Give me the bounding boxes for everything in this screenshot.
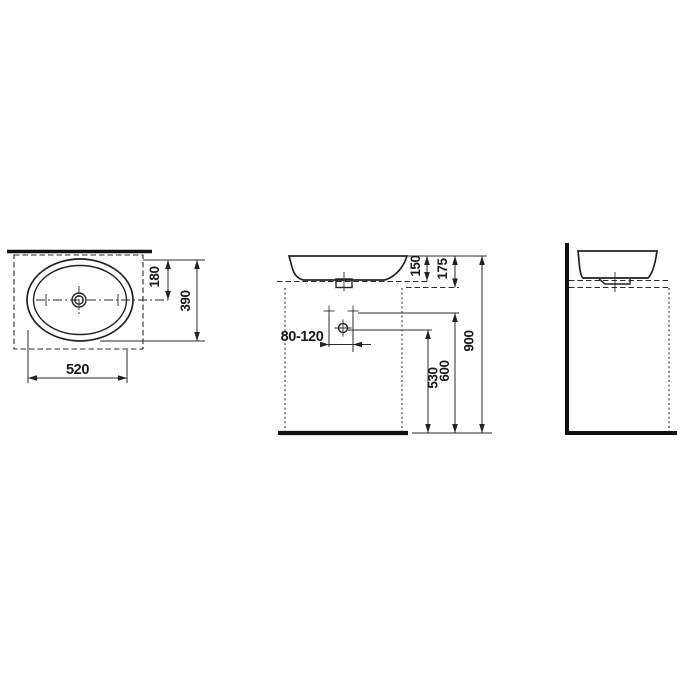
arrowhead-left-icon bbox=[28, 375, 37, 381]
drain-lip bbox=[599, 279, 630, 284]
dim-label-rear-to-center: 180 bbox=[147, 266, 162, 287]
dim-label-depth: 390 bbox=[178, 290, 193, 311]
top-view: 520 180 390 bbox=[7, 252, 205, 384]
side-view bbox=[565, 243, 677, 435]
dim-label-width: 520 bbox=[66, 362, 89, 378]
front-view: 80-120 150 175 530 600 900 bbox=[277, 255, 492, 433]
dim-label-rim-height: 900 bbox=[462, 330, 477, 351]
technical-drawing-page: 520 180 390 80-120 bbox=[0, 0, 700, 700]
dim-label-bowl-height: 150 bbox=[408, 255, 423, 276]
arrowhead-right-icon bbox=[118, 375, 127, 381]
arrowhead-up-icon bbox=[479, 256, 485, 265]
arrowhead-down-icon bbox=[425, 424, 431, 433]
arrowhead-up-icon bbox=[424, 256, 430, 265]
arrowhead-up-icon bbox=[425, 330, 431, 339]
arrowhead-down-icon bbox=[479, 424, 485, 433]
basin-front-profile bbox=[289, 256, 407, 280]
arrowhead-up-icon bbox=[452, 313, 458, 322]
washbasin-dimension-drawing: 520 180 390 80-120 bbox=[0, 0, 700, 700]
dim-label-rim-offset: 175 bbox=[435, 257, 450, 279]
supply-connection-left bbox=[324, 306, 335, 317]
dim-label-supply-height: 600 bbox=[437, 360, 452, 381]
basin-side-profile bbox=[578, 251, 657, 278]
arrowhead-down-icon bbox=[165, 291, 171, 300]
dim-label-tap-range: 80-120 bbox=[281, 329, 324, 345]
arrowhead-left-icon bbox=[353, 342, 362, 348]
supply-connection-right bbox=[348, 306, 359, 317]
arrowhead-down-icon bbox=[452, 424, 458, 433]
arrowhead-up-icon bbox=[452, 256, 458, 265]
arrowhead-down-icon bbox=[424, 272, 430, 281]
arrowhead-up-icon bbox=[194, 260, 200, 269]
arrowhead-down-icon bbox=[194, 332, 200, 341]
arrowhead-down-icon bbox=[452, 279, 458, 288]
arrowhead-up-icon bbox=[165, 260, 171, 269]
waste-outlet-symbol bbox=[335, 320, 352, 337]
